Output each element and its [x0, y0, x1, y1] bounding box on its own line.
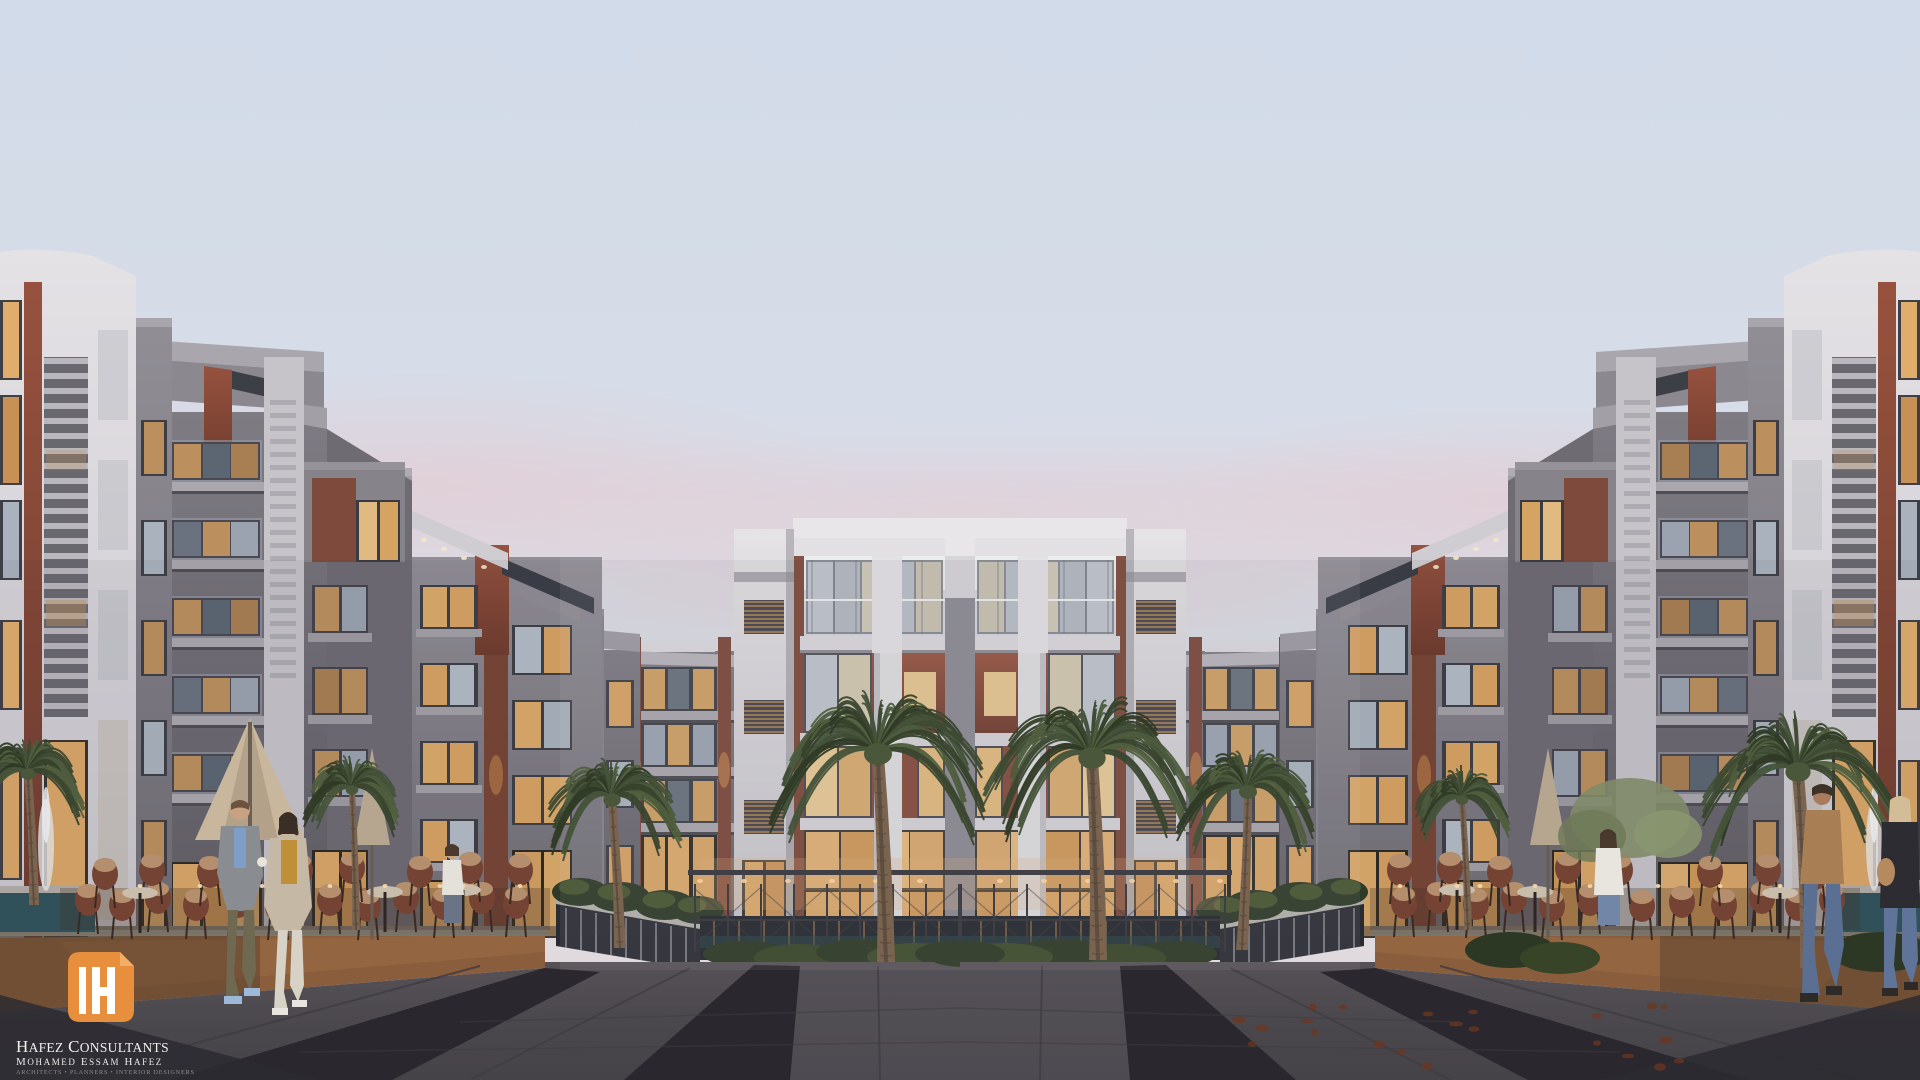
svg-text:ARCHITECTS • PLANNERS • INTERI: ARCHITECTS • PLANNERS • INTERIOR DESIGNE… — [16, 1069, 195, 1076]
svg-text:MOHAMED ESSAM HAFEZ: MOHAMED ESSAM HAFEZ — [16, 1056, 163, 1068]
svg-text:HAFEZ CONSULTANTS: HAFEZ CONSULTANTS — [16, 1037, 169, 1056]
